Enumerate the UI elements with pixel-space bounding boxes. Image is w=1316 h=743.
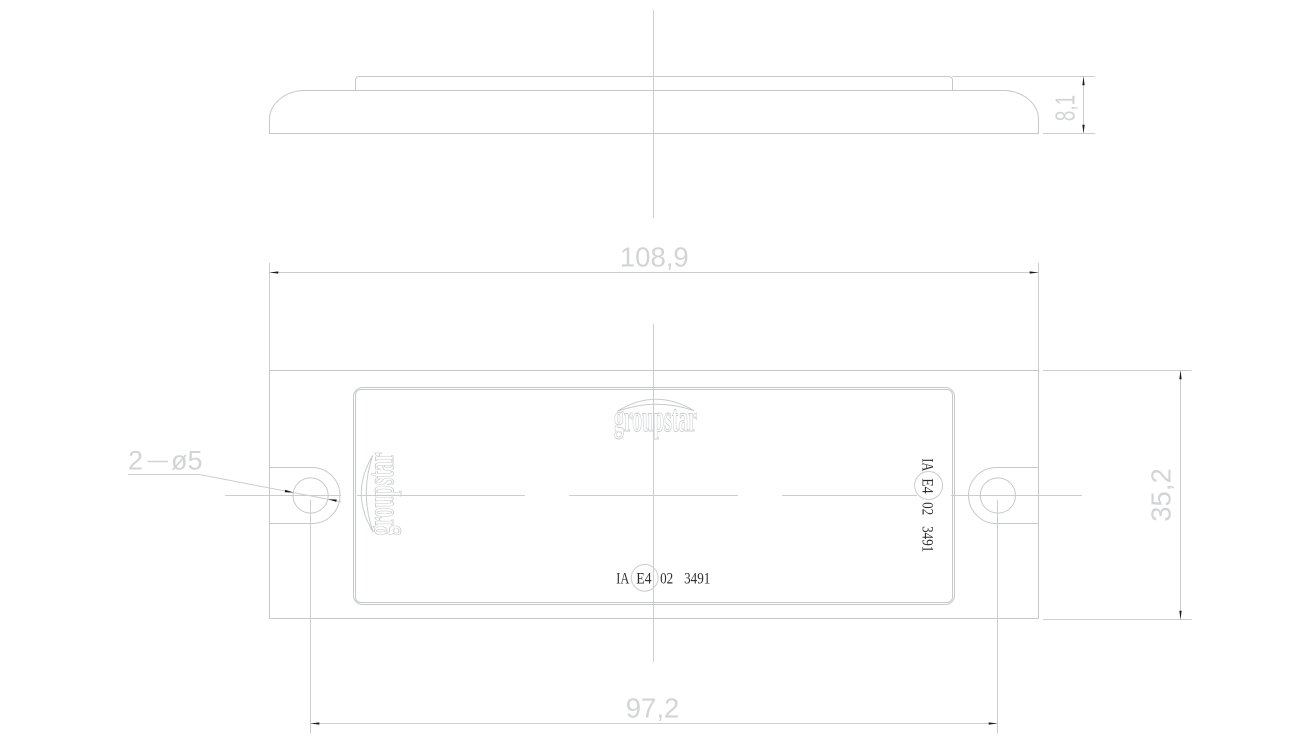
svg-text:02: 02 [919, 502, 936, 515]
svg-text:02: 02 [660, 570, 673, 587]
svg-text:108,9: 108,9 [620, 242, 689, 273]
svg-text:8,1: 8,1 [1050, 95, 1081, 122]
svg-text:IA: IA [919, 458, 936, 472]
svg-text:35,2: 35,2 [1146, 468, 1177, 522]
svg-text:ø5: ø5 [171, 446, 203, 476]
svg-text:E4: E4 [919, 478, 936, 494]
svg-text:97,2: 97,2 [626, 693, 680, 724]
svg-text:E4: E4 [636, 570, 652, 587]
svg-text:3491: 3491 [684, 570, 710, 587]
svg-text:2: 2 [128, 446, 143, 476]
svg-text:IA: IA [616, 570, 630, 587]
svg-text:3491: 3491 [919, 526, 936, 552]
